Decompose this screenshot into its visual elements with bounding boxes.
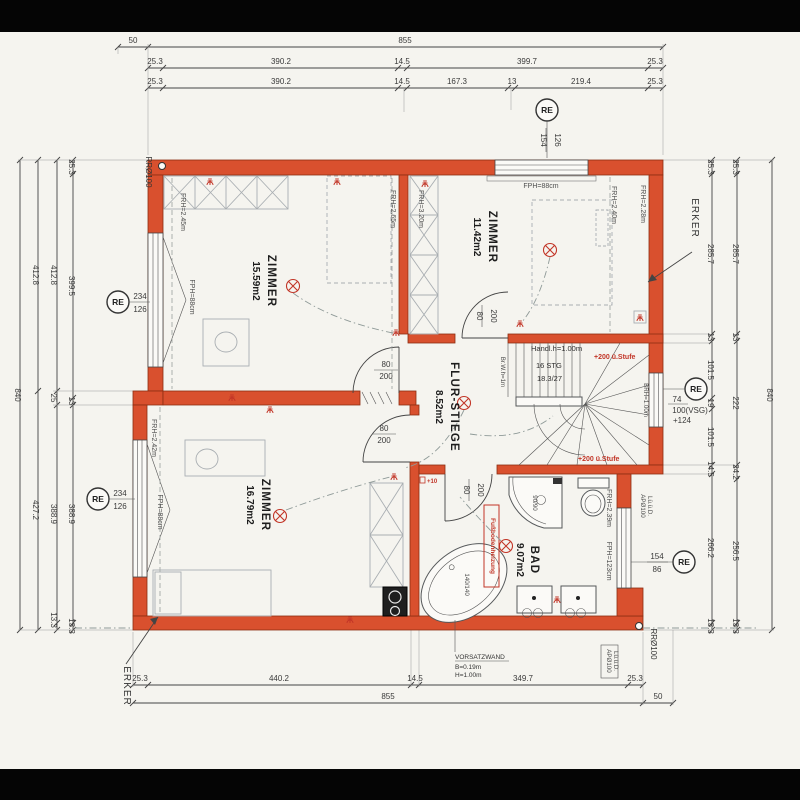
door-size: 200: [379, 372, 393, 381]
dim-label: 440.2: [269, 674, 290, 683]
dim-label: 266.2: [706, 538, 715, 559]
re-tag: RE: [92, 494, 104, 504]
dim-label: 390.2: [271, 77, 292, 86]
dim-label: 840: [765, 388, 774, 402]
room-name-zimmer-bl: ZIMMER: [259, 479, 271, 532]
door-size: 80: [382, 360, 391, 369]
dim-label: 24.2: [731, 464, 740, 480]
window-size: 74: [673, 395, 682, 404]
dim-label: 25.3: [647, 57, 663, 66]
stair-parapet-label: BRH=1.00m: [642, 383, 649, 417]
dim-label: 25.3: [147, 57, 163, 66]
dim-label: 25.3: [731, 159, 740, 175]
pipe-circle: [159, 163, 166, 170]
letterbox-bottom: [0, 769, 800, 800]
room-area-flur: 8.52m2: [433, 390, 444, 424]
floor-plan-drawing: 50 855 25.3 390.2 14.5 399.7 25.3 25.3 3…: [0, 0, 800, 800]
appliance-bl: [383, 587, 407, 616]
frh-label: FRH=2.40m: [610, 186, 617, 224]
dim-label: 285.7: [731, 244, 740, 265]
dim-label: 25.3: [132, 674, 148, 683]
re-tag: RE: [541, 105, 553, 115]
frh-label: FRH=2.45m: [179, 193, 186, 231]
floor-plan-page: 50 855 25.3 390.2 14.5 399.7 25.3 25.3 3…: [0, 0, 800, 800]
floor-heating-text: Fußbodenheizung: [489, 518, 496, 574]
window-size: 86: [653, 565, 662, 574]
fph-label: FPH=88cm: [188, 279, 195, 314]
room-name-flur: FLUR-STIEGE: [448, 362, 460, 452]
stair-count-label: 16 STG: [536, 361, 562, 370]
fph-label: FPH=123cm: [605, 541, 612, 580]
stair-step-note: +200 ü.Stufe: [578, 456, 620, 463]
dim-label: 13.3: [731, 618, 740, 634]
shower-size-label: 90/90: [531, 495, 538, 511]
dim-label: 390.2: [271, 57, 292, 66]
dim-label: 399.5: [67, 276, 76, 297]
dim-label: 50: [129, 36, 138, 45]
dim-label: 412.8: [31, 265, 40, 286]
frh-label: FRH=2.65m: [389, 190, 396, 228]
dim-label: 101.5: [706, 427, 715, 448]
dim-label: 25.3: [706, 159, 715, 175]
dim-label: 412.8: [49, 265, 58, 286]
window-size: 126: [113, 502, 127, 511]
room-area-zimmer-tl: 15.59m2: [250, 261, 261, 301]
dim-label: 13.3: [67, 618, 76, 634]
ap-pipe-label: Lü.ü.D.: [646, 496, 653, 516]
dim-label: 855: [381, 692, 395, 701]
room-area-zimmer-bl: 16.79m2: [244, 485, 255, 525]
window-size: 154: [650, 552, 664, 561]
ap-pipe-label: APØ100: [639, 494, 646, 518]
dim-label: 13.3: [706, 618, 715, 634]
window-bad: [617, 508, 631, 588]
rr-pipe-label: RRØ100: [144, 156, 153, 188]
window-size: 100(VSG): [672, 406, 708, 415]
dim-label: 13: [706, 333, 715, 342]
dim-label: 25.3: [647, 77, 663, 86]
dim-label: 13.3: [49, 612, 58, 628]
ap-pipe-label: APØ100: [605, 649, 612, 673]
dim-label: 25.3: [147, 77, 163, 86]
vorsatzwand-line1: VORSATZWAND: [455, 654, 505, 661]
dim-label: 840: [13, 388, 22, 402]
door-size: 80: [475, 312, 484, 321]
dim-label: 256.5: [731, 541, 740, 562]
dim-label: 427.2: [31, 500, 40, 521]
dim-label: 855: [398, 36, 412, 45]
dim-label: 399.7: [517, 57, 538, 66]
door-size: 200: [377, 436, 391, 445]
window-size: 154: [539, 133, 548, 147]
room-name-zimmer-tr: ZIMMER: [486, 211, 498, 264]
stair-width-label: Br.W.h=1m: [499, 357, 506, 387]
dim-label: 25.3: [67, 159, 76, 175]
erker-label-right: ERKER: [689, 198, 700, 237]
re-tag: RE: [690, 384, 702, 394]
dim-label: 13: [731, 333, 740, 342]
dim-label: 50: [654, 692, 663, 701]
frh-label: FRH=3.20m: [417, 190, 424, 228]
re-tag: RE: [678, 557, 690, 567]
window-stair: [649, 373, 663, 427]
room-name-zimmer-tl: ZIMMER: [265, 255, 277, 308]
dim-label: 167.3: [447, 77, 468, 86]
pipe-circle: [636, 623, 643, 630]
frh-label: FRH=2.28m: [639, 185, 646, 223]
door-size: 80: [462, 486, 471, 495]
window-size: 126: [553, 133, 562, 147]
dim-label: 25: [49, 394, 58, 403]
tub-size-label: 140/140: [463, 573, 470, 596]
sink-right: [561, 586, 596, 618]
re-tag: RE: [112, 297, 124, 307]
fph-label: FPH=88cm: [523, 183, 558, 190]
frh-label: FRH=2.42m: [150, 419, 157, 457]
dim-label: 349.7: [513, 674, 534, 683]
dim-label: 285.7: [706, 244, 715, 265]
window-size: 234: [133, 292, 147, 301]
window-size: 234: [113, 489, 127, 498]
dim-label: 388.9: [67, 504, 76, 525]
vorsatzwand-line2: B=0.19m: [455, 664, 481, 671]
door-size: 200: [489, 309, 498, 323]
dim-label: 219.4: [571, 77, 592, 86]
dim-label: 14.5: [394, 77, 410, 86]
dim-label: 14.5: [407, 674, 423, 683]
erker-label-bottom: ERKER: [121, 666, 132, 705]
door-size: 200: [476, 483, 485, 497]
fph-label: FPH=88cm: [156, 494, 163, 529]
letterbox-top: [0, 0, 800, 32]
dim-label: 14.5: [706, 461, 715, 477]
shower-faucet: [553, 478, 562, 484]
sink-left: [517, 586, 552, 618]
dim-label: 388.9: [49, 504, 58, 525]
room-area-zimmer-tr: 11.42m2: [471, 218, 482, 257]
stair-step-note: +200 ü.Stufe: [594, 354, 636, 361]
dim-label: 13: [508, 77, 517, 86]
stair-handrail-label: Handl.h=1.00m: [531, 344, 582, 353]
dim-label: 101.5: [706, 360, 715, 381]
plus10-text: +10: [427, 479, 438, 485]
door-size: 80: [380, 424, 389, 433]
stair-riser-label: 18.3/27: [537, 374, 562, 383]
vorsatzwand-line3: H=1.00m: [455, 672, 482, 679]
dim-label: 13: [67, 397, 76, 406]
dim-label: 14.5: [394, 57, 410, 66]
dim-label: 25.3: [627, 674, 643, 683]
ap-pipe-label: Lü.ü.D.: [612, 651, 619, 671]
window-size: 126: [133, 305, 147, 314]
window-size: +124: [673, 416, 692, 425]
dim-label: 222: [731, 396, 740, 410]
rr-pipe-label: RRØ100: [649, 628, 658, 660]
frh-label: FRH=2.39m: [605, 489, 612, 527]
room-name-bad: BAD: [528, 546, 540, 575]
room-area-bad: 9.07m2: [514, 543, 525, 577]
